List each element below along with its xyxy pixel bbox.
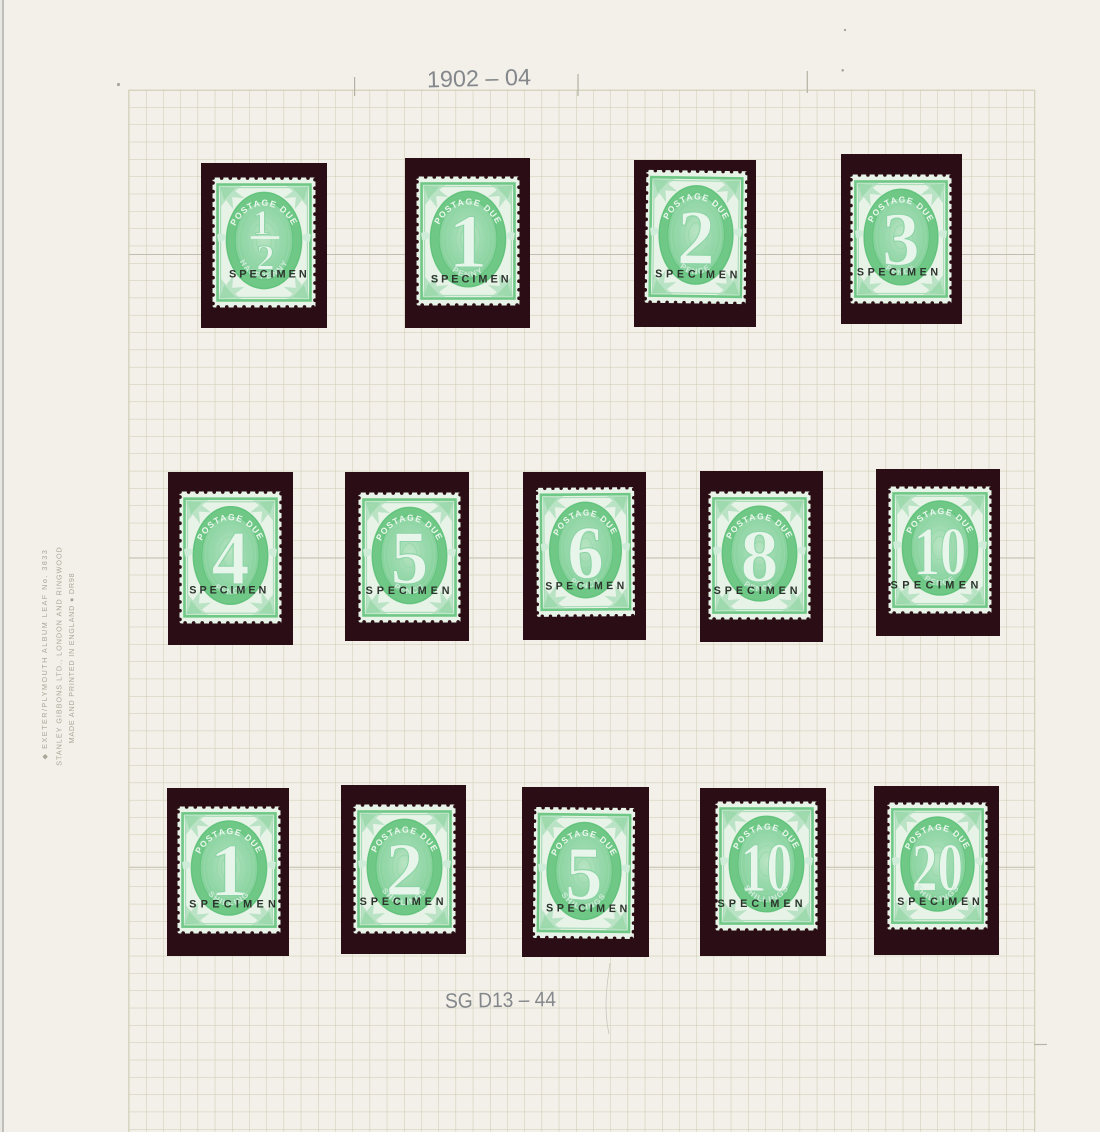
svg-text:MADE AND PRINTED IN ENGLAND ●: MADE AND PRINTED IN ENGLAND ● DR98 xyxy=(67,573,76,744)
svg-text:STANLEY GIBBONS LTD., LONDON A: STANLEY GIBBONS LTD., LONDON AND RINGWOO… xyxy=(55,546,64,766)
svg-text:1902 – 04: 1902 – 04 xyxy=(427,64,532,93)
svg-text:SG D13 – 44: SG D13 – 44 xyxy=(445,988,557,1013)
svg-text:◆ EXETER/PLYMOUTH ALBUM LEAF N: ◆ EXETER/PLYMOUTH ALBUM LEAF No. 3833 xyxy=(40,549,49,760)
